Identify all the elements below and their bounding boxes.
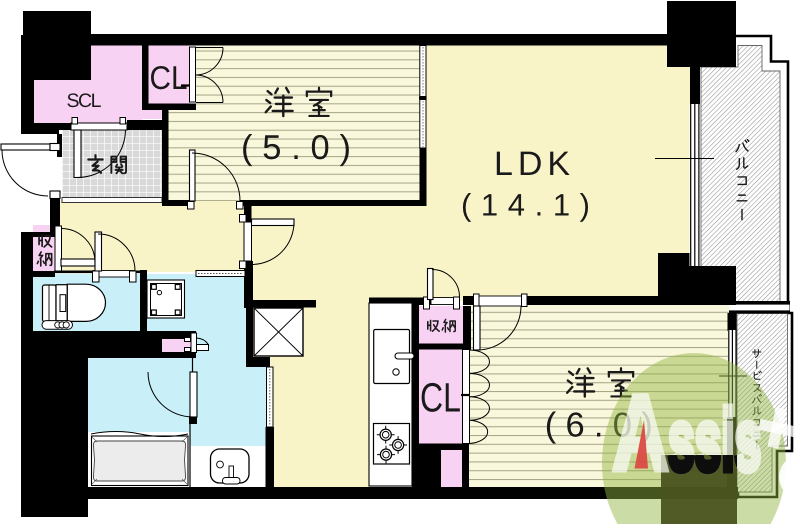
svg-text:CL: CL <box>150 59 188 96</box>
svg-text:LDK: LDK <box>494 145 570 183</box>
svg-text:A: A <box>612 372 669 493</box>
svg-text:CL: CL <box>420 375 461 421</box>
svg-text:SCL: SCL <box>67 90 102 112</box>
